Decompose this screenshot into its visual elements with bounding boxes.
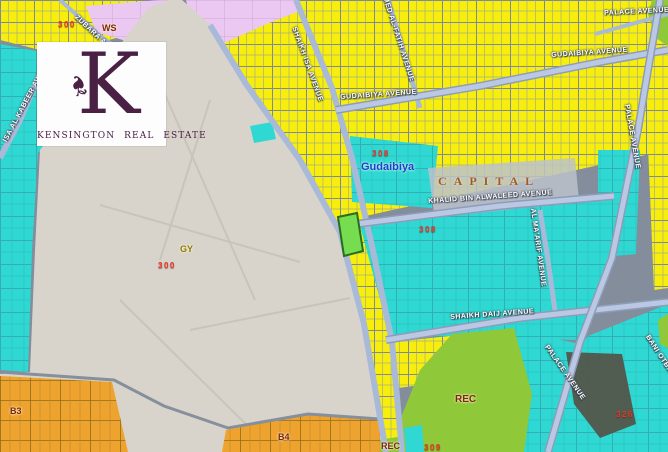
brand-logo: ❧ K KENSINGTON REAL ESTATE: [37, 42, 166, 146]
zone-label-b3: B3: [10, 406, 22, 416]
district-label-capital: CAPITAL: [438, 174, 540, 189]
parcel-cyan-small-bottom: [404, 425, 424, 452]
district-label-gudaibiya: Gudaibiya: [361, 161, 414, 173]
logo-name: KENSINGTON REAL ESTATE: [37, 131, 166, 141]
block-number-300-top: 300: [58, 20, 76, 29]
block-number-308-north: 308: [372, 149, 390, 158]
block-number-309: 309: [424, 443, 442, 452]
zone-label-ws: WS: [102, 23, 117, 33]
block-number-326: 326: [616, 410, 634, 419]
zone-label-b4: B4: [278, 432, 290, 442]
block-number-300-graveyard: 300: [158, 261, 176, 270]
zone-label-rec-main: REC: [455, 394, 476, 405]
block-number-308-south: 308: [419, 225, 437, 234]
logo-monogram: ❧ K: [37, 42, 166, 126]
map-canvas[interactable]: ZUBARA AVE ISA AL KABEER AVE SHAIKH ISA …: [0, 0, 668, 452]
zone-label-gy: GY: [180, 244, 193, 254]
zone-label-rec-south: REC: [381, 441, 400, 451]
